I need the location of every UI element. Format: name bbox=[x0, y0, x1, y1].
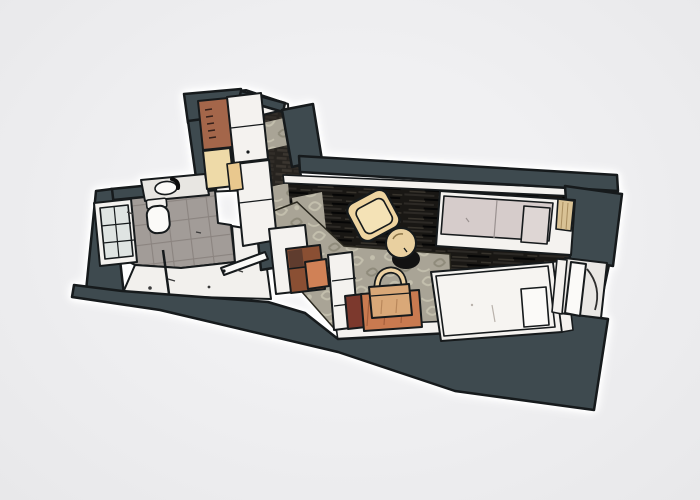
twin-bed-2 bbox=[431, 261, 573, 341]
bed1-headboard bbox=[556, 199, 574, 231]
side-table bbox=[386, 228, 416, 258]
desk-shelf-inner bbox=[288, 249, 304, 269]
shower bbox=[94, 199, 137, 266]
twin-bed-1 bbox=[436, 191, 575, 255]
floor-plan-illustration bbox=[0, 0, 700, 500]
window-door bbox=[552, 258, 607, 318]
door-hinge bbox=[222, 269, 225, 272]
toilet-bowl bbox=[146, 205, 171, 234]
side-table-top bbox=[386, 228, 416, 258]
sink-counter bbox=[141, 174, 209, 201]
bag-body bbox=[369, 284, 412, 318]
toilet bbox=[145, 198, 170, 234]
plan bbox=[72, 89, 622, 410]
floor-plan-canvas bbox=[0, 0, 700, 500]
wardrobe-tan-patch bbox=[227, 162, 243, 191]
bed1-pillow bbox=[521, 206, 550, 244]
bed2-pillow bbox=[521, 287, 549, 327]
desk-chair bbox=[305, 259, 329, 289]
cabinet-handle bbox=[246, 150, 249, 153]
